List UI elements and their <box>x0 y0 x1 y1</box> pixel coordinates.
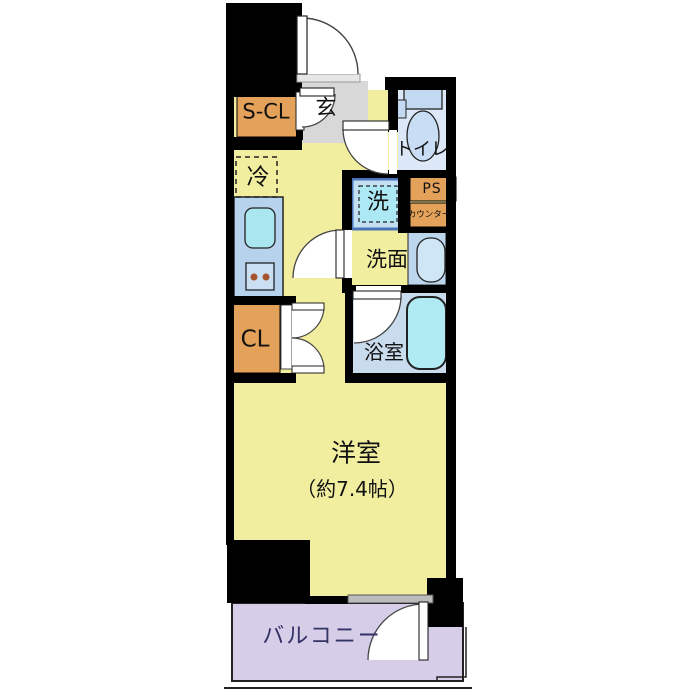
door-leaf <box>297 16 307 74</box>
balcony-label: バルコニー <box>262 626 382 648</box>
door-leaf <box>353 291 401 299</box>
entrance-threshold <box>297 74 360 82</box>
counter-label: カウンター <box>408 211 451 220</box>
wall <box>342 175 352 232</box>
toilet-label: トイレ <box>395 141 449 159</box>
door-leaf <box>419 602 428 660</box>
sink-basin-icon <box>417 238 445 282</box>
bathroom-label: 浴室 <box>364 342 404 362</box>
wall <box>226 97 234 545</box>
door-swing <box>302 18 358 74</box>
toilet-handle-icon <box>397 100 406 118</box>
bathtub-icon <box>407 297 446 369</box>
wall <box>227 296 296 305</box>
kitchen-sink-icon <box>245 208 275 248</box>
western-room-size-label: （約7.4帖） <box>296 479 408 499</box>
pipe-space-label: PS <box>422 182 441 196</box>
western-room-label: 洋室 <box>331 441 381 466</box>
floor-plan-drawing <box>0 0 700 700</box>
washroom-label: 洗面 <box>366 250 408 271</box>
toilet-tank-icon <box>404 87 442 109</box>
stove-burner-icon <box>251 274 258 281</box>
wall <box>226 3 302 97</box>
wall <box>345 290 353 380</box>
wall <box>398 178 410 232</box>
door-leaf <box>292 366 324 373</box>
storage-closet-label: S-CL <box>242 102 289 123</box>
stove-burner-icon <box>263 274 270 281</box>
wall <box>398 227 456 233</box>
door-leaf <box>343 121 389 130</box>
wall <box>227 540 310 603</box>
wall <box>226 137 302 150</box>
refrigerator-label: 冷 <box>247 167 270 190</box>
washer-label: 洗 <box>367 192 389 214</box>
door-leaf <box>292 303 324 310</box>
wall <box>345 373 456 383</box>
door-leaf <box>336 230 344 278</box>
closet-doorway <box>281 305 292 369</box>
closet-label: CL <box>241 329 270 352</box>
entrance-label: 玄 <box>316 98 337 119</box>
stove-icon <box>246 263 274 290</box>
wall <box>385 77 456 90</box>
wall <box>227 373 296 383</box>
floor-plan: S-CL 玄 トイレ 冷 洗 PS カウンター 洗面 CL 浴室 洋室 （約7.… <box>0 0 700 700</box>
